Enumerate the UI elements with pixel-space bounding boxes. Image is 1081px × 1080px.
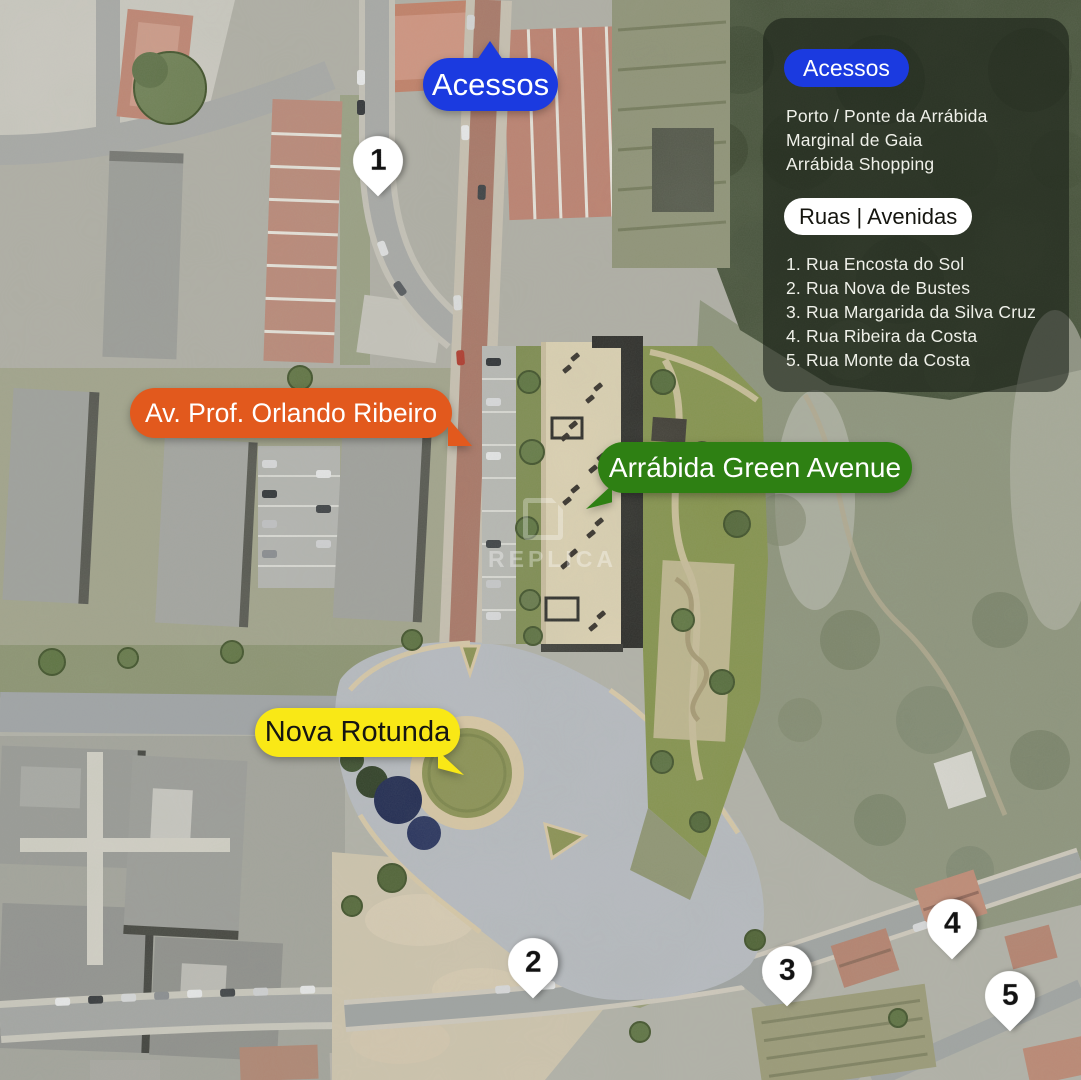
legend-acessos-list: Porto / Ponte da Arrábida Marginal de Ga… [786,104,988,176]
map-pin-5-number: 5 [1002,979,1019,1013]
legend-acessos-badge: Acessos [784,49,909,87]
map-pin-4-number: 4 [944,907,961,941]
callout-acessos[interactable]: Acessos [423,58,558,111]
callout-acessos-label: Acessos [432,67,549,103]
callout-av-prof-orlando-ribeiro[interactable]: Av. Prof. Orlando Ribeiro [130,388,452,438]
legend-acessos-item: Arrábida Shopping [786,152,988,176]
legend-acessos-item: Marginal de Gaia [786,128,988,152]
map-pin-3-number: 3 [779,954,796,988]
legend-ruas-item: 2. Rua Nova de Bustes [786,276,1036,300]
map-pin-1-number: 1 [370,144,387,178]
legend-panel: Acessos Porto / Ponte da Arrábida Margin… [763,18,1069,392]
legend-ruas-list: 1. Rua Encosta do Sol 2. Rua Nova de Bus… [786,252,1036,372]
map-pin-2-number: 2 [525,946,542,980]
legend-ruas-badge: Ruas | Avenidas [784,198,972,235]
legend-acessos-item: Porto / Ponte da Arrábida [786,104,988,128]
callout-projeto-label: Arrábida Green Avenue [609,452,901,484]
legend-ruas-item: 5. Rua Monte da Costa [786,348,1036,372]
callout-arrabida-green-avenue[interactable]: Arrábida Green Avenue [598,442,912,493]
legend-ruas-item: 1. Rua Encosta do Sol [786,252,1036,276]
aerial-map-page: REPLICA Acessos Porto / Ponte da Arrábid… [0,0,1081,1080]
callout-avenida-label: Av. Prof. Orlando Ribeiro [145,398,437,429]
legend-ruas-item: 4. Rua Ribeira da Costa [786,324,1036,348]
callout-nova-rotunda[interactable]: Nova Rotunda [255,708,460,757]
legend-ruas-item: 3. Rua Margarida da Silva Cruz [786,300,1036,324]
callout-rotunda-label: Nova Rotunda [265,716,450,749]
callout-acessos-pointer [477,41,503,60]
